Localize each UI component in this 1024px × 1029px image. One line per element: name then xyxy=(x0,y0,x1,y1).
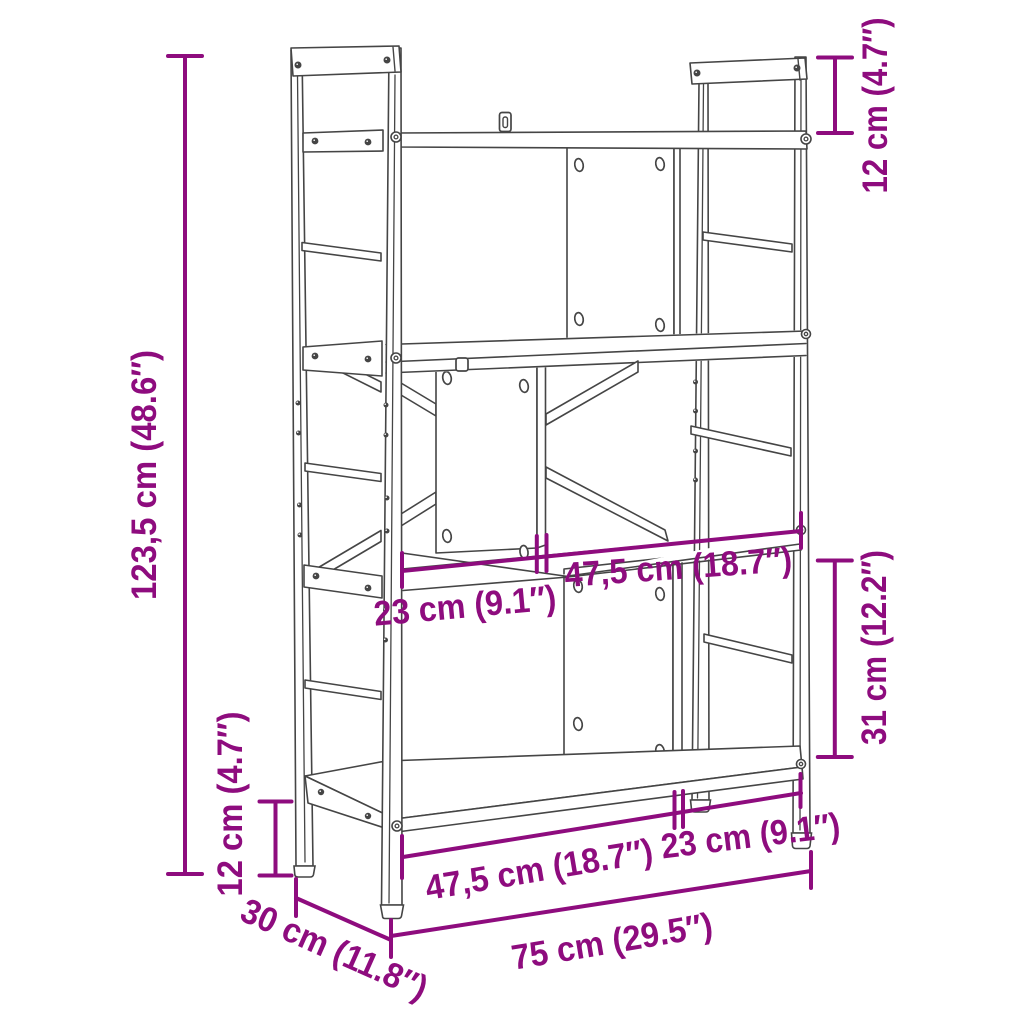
svg-text:12 cm (4.7″): 12 cm (4.7″) xyxy=(211,712,250,897)
svg-text:12 cm (4.7″): 12 cm (4.7″) xyxy=(856,18,895,194)
svg-text:75 cm (29.5″): 75 cm (29.5″) xyxy=(509,906,716,978)
svg-text:23 cm (9.1″): 23 cm (9.1″) xyxy=(659,806,842,867)
svg-text:31 cm (12.2″): 31 cm (12.2″) xyxy=(855,550,894,745)
svg-text:47,5 cm (18.7″): 47,5 cm (18.7″) xyxy=(563,540,793,595)
svg-text:30 cm (11.8″): 30 cm (11.8″) xyxy=(235,891,434,1008)
svg-text:47,5 cm (18.7″): 47,5 cm (18.7″) xyxy=(422,831,655,907)
svg-text:123,5 cm (48.6″): 123,5 cm (48.6″) xyxy=(125,350,164,600)
